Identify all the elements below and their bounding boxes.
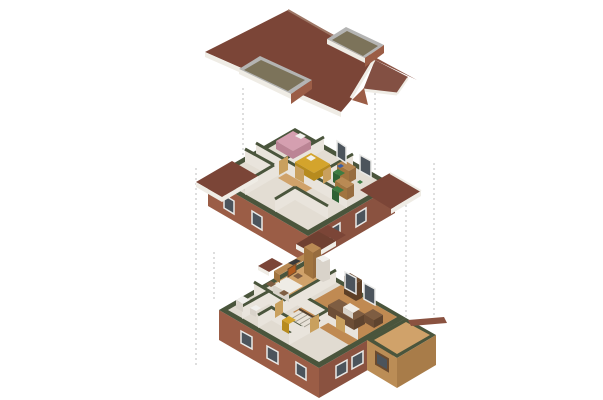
fridge-side-se bbox=[323, 259, 330, 282]
fridge-side-sw bbox=[316, 258, 323, 282]
exploded-house-diagram bbox=[0, 0, 603, 400]
canvas bbox=[0, 0, 603, 400]
media-shelf-side-se bbox=[356, 280, 362, 301]
